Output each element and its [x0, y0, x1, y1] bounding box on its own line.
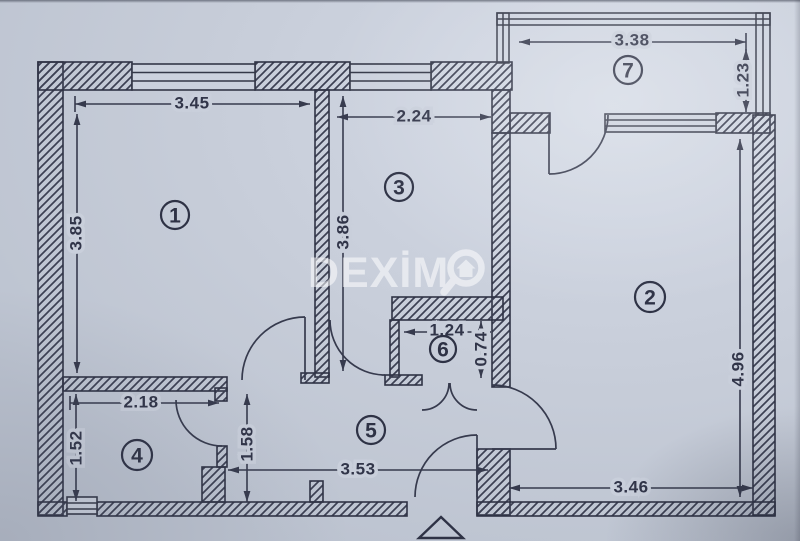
window-room4 [67, 497, 97, 514]
wall-room2-notch [510, 113, 550, 133]
wall-room4-right [202, 467, 225, 502]
dimension-label: 1.23 [733, 62, 752, 97]
wall-room4-jamb [217, 446, 227, 467]
room-number: 7 [622, 60, 634, 83]
wall-bottom-stub [310, 481, 323, 502]
wall-bottom-a [38, 502, 67, 516]
dimension-label: 2.24 [396, 106, 431, 125]
wall-bottom-c [477, 502, 775, 516]
dimension-label: 4.96 [728, 351, 747, 386]
window-room3 [350, 64, 431, 90]
wall-room6-top [392, 297, 503, 320]
room-number: 4 [131, 445, 143, 468]
wall-room2-left-mid [492, 133, 510, 387]
wall-room1-bottom [63, 377, 227, 391]
wall-right [753, 115, 775, 515]
room-number: 6 [437, 339, 449, 362]
dimension-label: 3.45 [174, 93, 209, 112]
wall-bottom-b [97, 502, 407, 516]
dimension-label: 2.18 [123, 392, 158, 411]
watermark-text: DEXİM [308, 249, 449, 297]
dimension-label: 3.38 [614, 30, 649, 49]
room-number: 3 [393, 177, 405, 200]
dimension-label: 1.52 [66, 430, 85, 465]
dimension-label: 3.85 [66, 215, 85, 250]
wall-top-c [431, 62, 512, 90]
wall-room1-room3 [315, 90, 329, 377]
wall-left [38, 62, 63, 515]
room-number: 2 [644, 287, 656, 310]
dimension-label: 3.53 [340, 459, 375, 478]
wall-room6-left [390, 320, 399, 377]
wall-room1-bottom-step [215, 388, 227, 401]
dimension-label: 1.58 [237, 426, 256, 461]
wall-room6-bottom-left [385, 375, 422, 385]
wall-top-a [38, 62, 132, 90]
dimension-label: 3.46 [613, 477, 648, 496]
floor-plan-photo: 3.45 3.85 2.24 3.86 3.38 [0, 0, 800, 541]
room-number: 5 [365, 420, 377, 443]
wall-top-b [255, 62, 350, 90]
dimension-label: 0.74 [471, 331, 490, 366]
wall-room2-left-top [492, 90, 510, 133]
dimension-label: 3.86 [333, 214, 352, 249]
window-room2-top [605, 114, 716, 132]
room-number: 1 [169, 205, 181, 228]
floor-plan-canvas: 3.45 3.85 2.24 3.86 3.38 [0, 0, 800, 541]
window-room1 [132, 64, 255, 90]
